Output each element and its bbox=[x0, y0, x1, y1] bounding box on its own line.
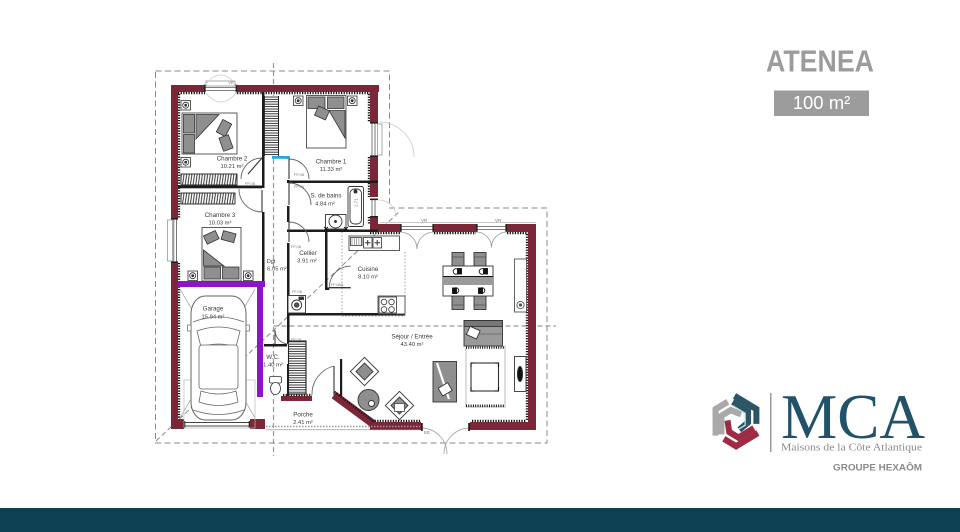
svg-text:Dgt: Dgt bbox=[267, 259, 276, 265]
svg-text:1.71: 1.71 bbox=[354, 198, 359, 207]
svg-text:FF.08: FF.08 bbox=[294, 172, 305, 177]
svg-text:11.33 m²: 11.33 m² bbox=[320, 167, 343, 173]
svg-text:Cellier: Cellier bbox=[299, 250, 317, 257]
svg-text:10.21 m²: 10.21 m² bbox=[221, 164, 244, 170]
svg-text:15.94 m²: 15.94 m² bbox=[202, 315, 225, 321]
svg-text:Garage: Garage bbox=[203, 306, 224, 313]
svg-text:GROUPE HEXAÔM: GROUPE HEXAÔM bbox=[833, 462, 922, 473]
svg-text:EE: EE bbox=[424, 430, 430, 435]
svg-text:Chambre 2: Chambre 2 bbox=[217, 156, 248, 163]
svg-text:Porche: Porche bbox=[293, 412, 313, 419]
svg-text:ATENEA: ATENEA bbox=[766, 44, 874, 79]
svg-text:6.05 m²: 6.05 m² bbox=[267, 267, 287, 273]
svg-text:VR: VR bbox=[495, 218, 502, 223]
svg-text:VR: VR bbox=[228, 80, 234, 85]
svg-text:S. de bains: S. de bains bbox=[311, 193, 342, 200]
svg-text:1.40 m²: 1.40 m² bbox=[263, 363, 283, 369]
svg-text:FF.08: FF.08 bbox=[245, 181, 256, 186]
svg-text:Séjour / Entrée: Séjour / Entrée bbox=[391, 334, 433, 341]
svg-text:FF.08: FF.08 bbox=[292, 289, 303, 294]
svg-text:43.40 m²: 43.40 m² bbox=[401, 342, 424, 348]
svg-text:FF.08: FF.08 bbox=[291, 244, 302, 249]
svg-text:Maisons de la Côte Atlantique: Maisons de la Côte Atlantique bbox=[781, 442, 922, 454]
svg-text:W.C.: W.C. bbox=[266, 354, 280, 361]
svg-text:8.10 m²: 8.10 m² bbox=[358, 275, 378, 281]
svg-text:Chambre 1: Chambre 1 bbox=[316, 159, 347, 166]
svg-text:3.91 m²: 3.91 m² bbox=[297, 259, 317, 265]
svg-text:Chambre 3: Chambre 3 bbox=[205, 212, 236, 219]
svg-text:2.41 m²: 2.41 m² bbox=[293, 420, 313, 426]
svg-text:Cuisine: Cuisine bbox=[358, 266, 379, 273]
svg-text:FF.08: FF.08 bbox=[294, 184, 305, 189]
svg-text:100 m²: 100 m² bbox=[793, 92, 851, 113]
svg-text:VR: VR bbox=[421, 218, 428, 223]
svg-text:FF.08: FF.08 bbox=[291, 337, 302, 342]
svg-text:10.03 m²: 10.03 m² bbox=[209, 221, 232, 227]
svg-text:4.84 m²: 4.84 m² bbox=[315, 202, 335, 208]
svg-text:FF.08A: FF.08A bbox=[331, 282, 344, 287]
